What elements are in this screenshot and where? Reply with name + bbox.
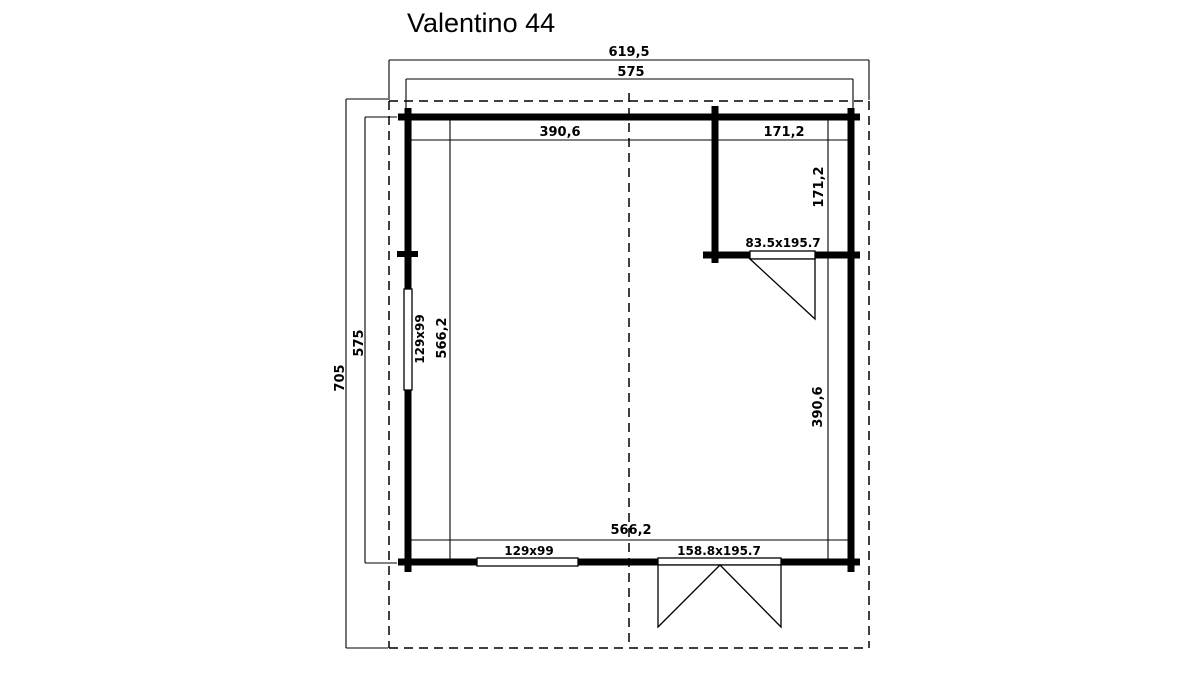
front-door-swing-left [658, 565, 720, 627]
bottom-window [477, 558, 578, 566]
label-annex-depth-right: 171,2 [812, 166, 827, 207]
floor-plan-canvas: 619,5 575 705 575 390,6 171,2 171,2 390,… [0, 0, 1200, 675]
label-overall-width: 619,5 [608, 45, 649, 60]
opening-labels: 129x99 129x99 83.5x195.7 158.8x195.7 [413, 236, 821, 558]
label-main-width-top: 390,6 [539, 125, 580, 140]
label-annex-width-top: 171,2 [763, 125, 804, 140]
left-window [404, 289, 412, 390]
label-interior-depth-left: 566,2 [435, 317, 450, 358]
label-main-depth-right: 390,6 [811, 386, 826, 427]
label-interior-width-bottom: 566,2 [610, 523, 651, 538]
label-exterior-width: 575 [617, 65, 644, 80]
label-left-window: 129x99 [413, 314, 427, 364]
label-exterior-depth: 575 [352, 329, 367, 356]
front-double-door [658, 558, 781, 565]
openings [404, 251, 815, 627]
front-door-swing-right [720, 565, 781, 627]
label-interior-door: 83.5x195.7 [745, 236, 820, 250]
label-front-double-door: 158.8x195.7 [677, 544, 761, 558]
interior-door-swing [750, 259, 815, 319]
interior-door [750, 251, 815, 259]
label-overall-depth: 705 [333, 364, 348, 391]
floor-plan-page: Valentino 44 [0, 0, 1200, 675]
label-bottom-window: 129x99 [504, 544, 554, 558]
